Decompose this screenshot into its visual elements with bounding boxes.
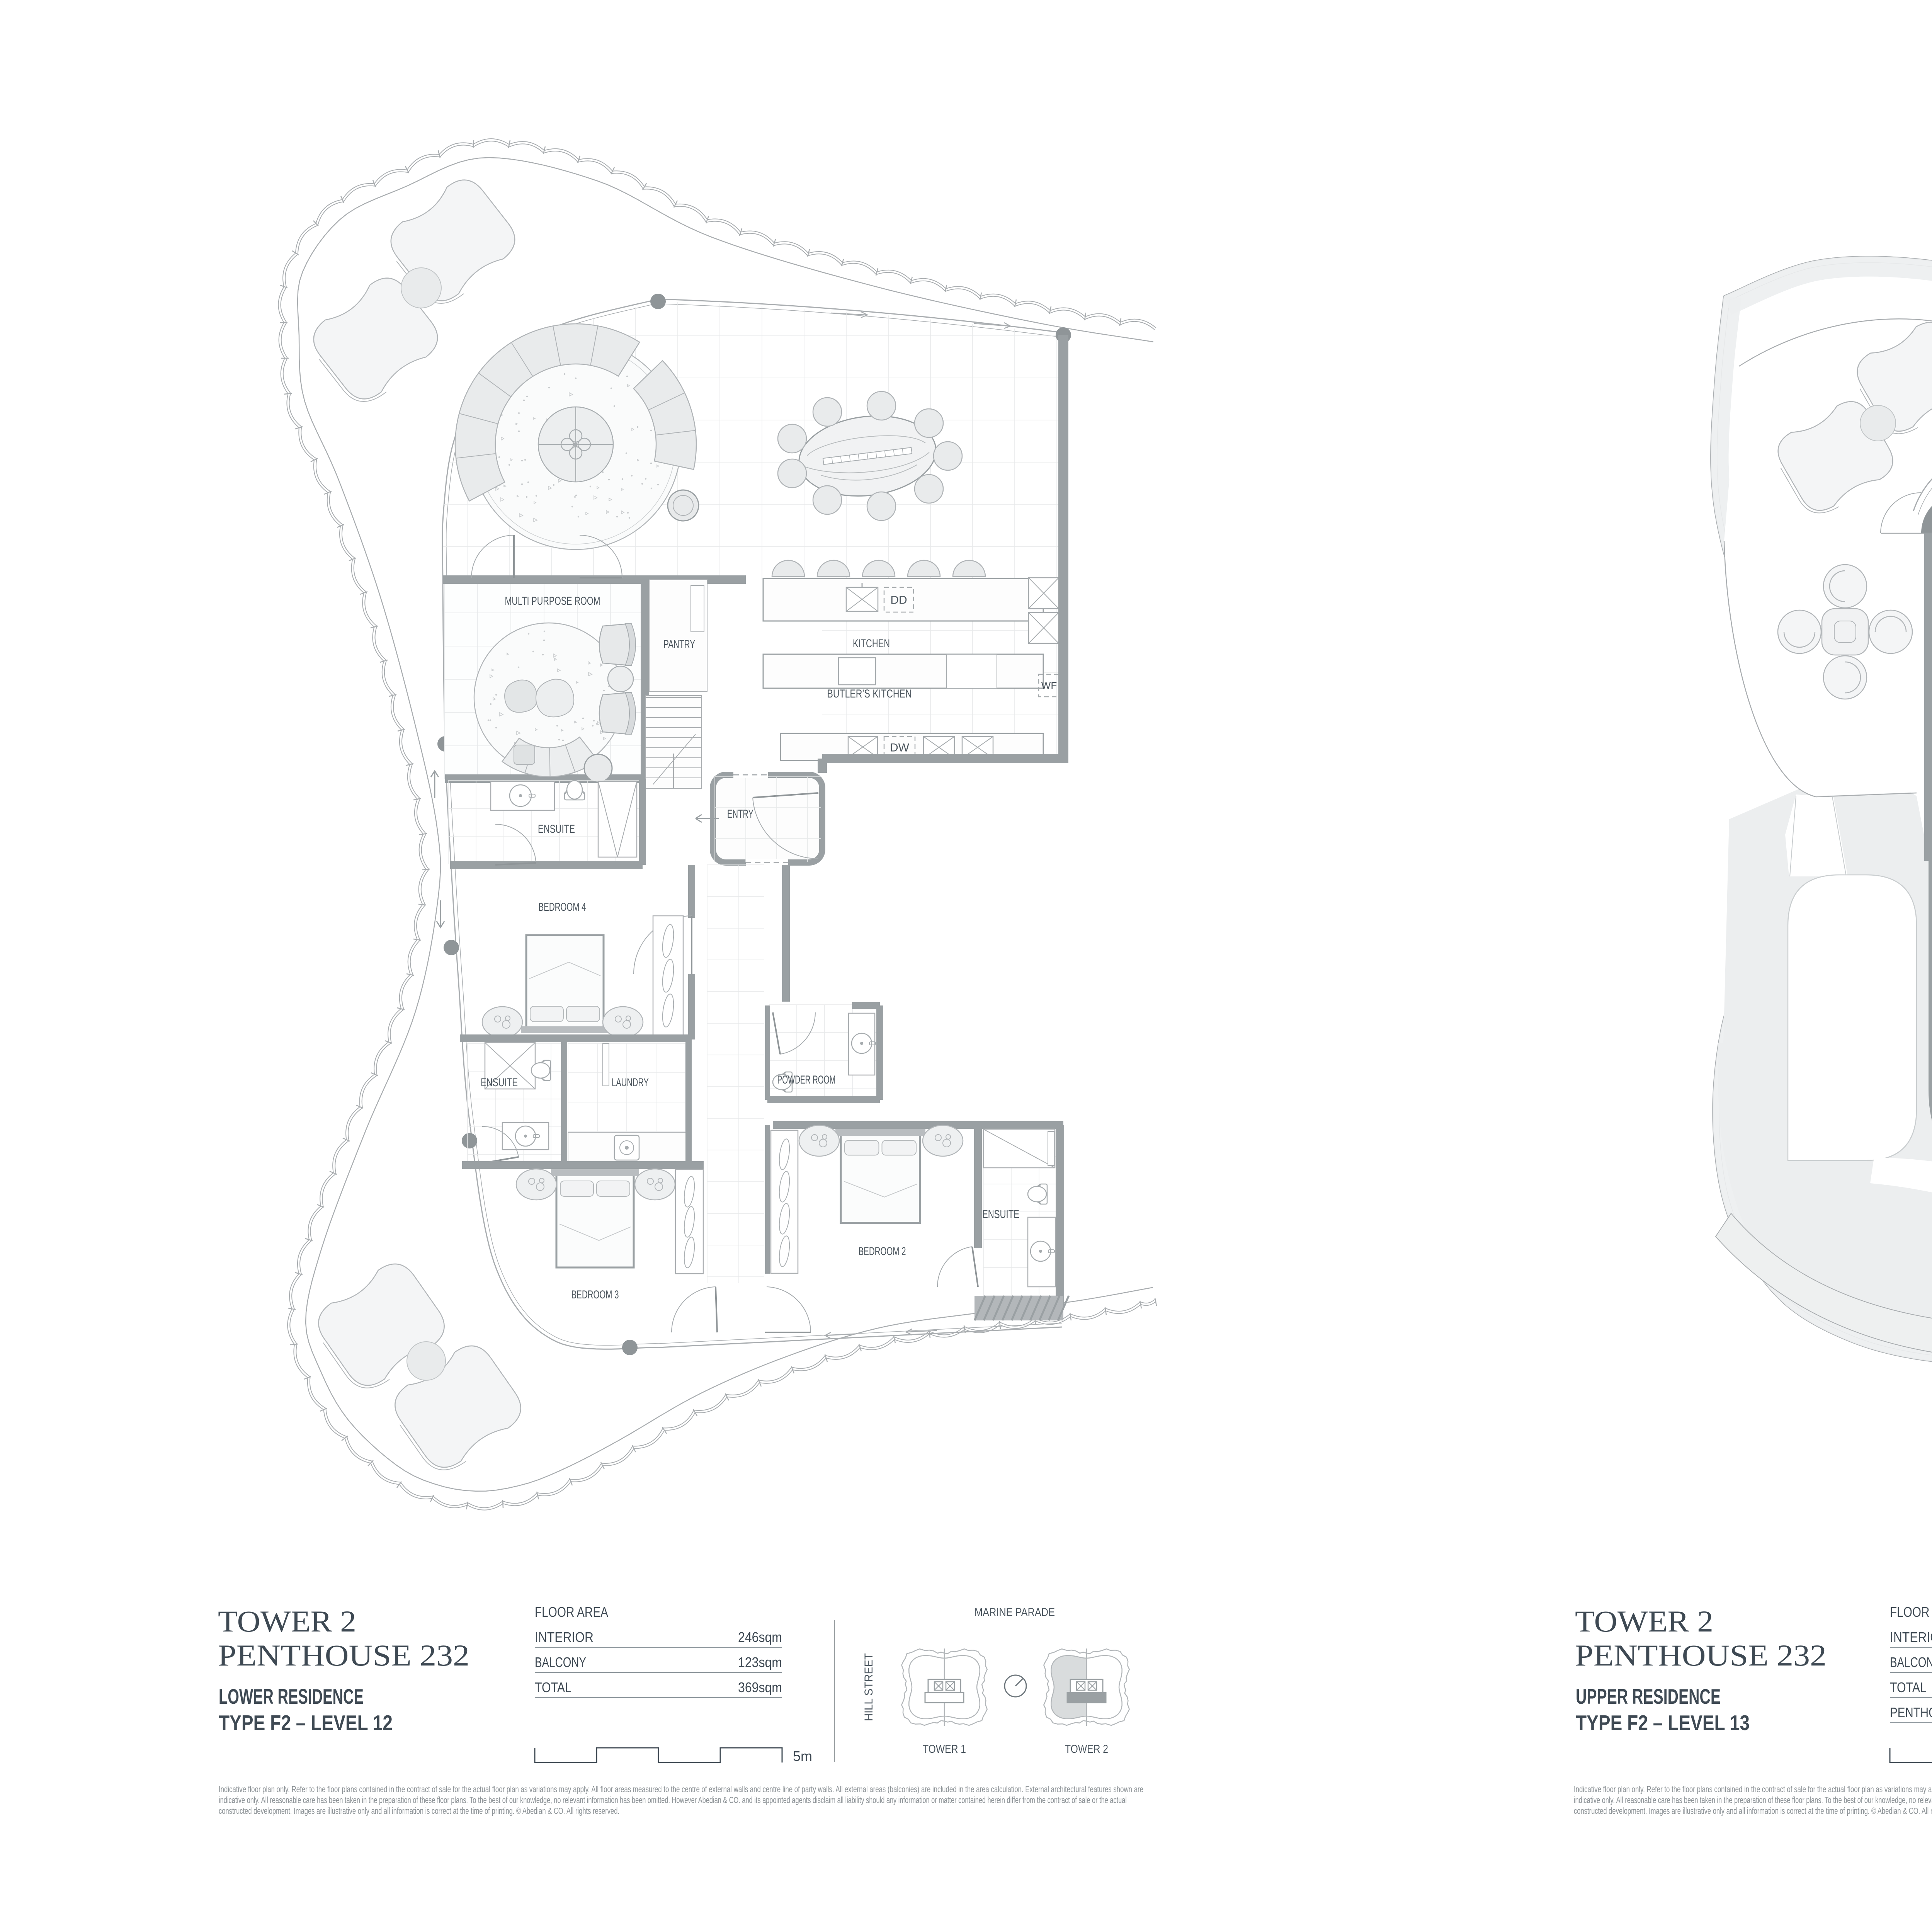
svg-text:KITCHEN: KITCHEN — [853, 637, 890, 650]
svg-text:INTERIOR: INTERIOR — [1890, 1629, 1932, 1645]
svg-text:indicative only. All reasonabl: indicative only. All reasonable care has… — [219, 1795, 1127, 1805]
svg-text:TOWER 2: TOWER 2 — [1065, 1743, 1108, 1756]
svg-text:BEDROOM 2: BEDROOM 2 — [859, 1245, 906, 1258]
svg-text:PENTHOUSE 232: PENTHOUSE 232 — [1575, 1638, 1827, 1672]
svg-text:5m: 5m — [793, 1748, 812, 1764]
svg-text:PENTHOUSE 232: PENTHOUSE 232 — [218, 1638, 469, 1672]
svg-text:ENSUITE: ENSUITE — [982, 1208, 1019, 1221]
svg-text:POWDER ROOM: POWDER ROOM — [777, 1073, 836, 1086]
svg-text:BEDROOM 3: BEDROOM 3 — [571, 1288, 619, 1301]
svg-text:TYPE F2 – LEVEL 13: TYPE F2 – LEVEL 13 — [1576, 1711, 1750, 1735]
svg-text:ENSUITE: ENSUITE — [538, 823, 575, 835]
svg-text:Indicative floor plan only. Re: Indicative floor plan only. Refer to the… — [219, 1784, 1143, 1794]
svg-text:PANTRY: PANTRY — [663, 638, 695, 651]
svg-text:HILL STREET: HILL STREET — [862, 1653, 875, 1721]
svg-text:FLOOR AREA: FLOOR AREA — [1890, 1604, 1932, 1620]
svg-text:TOWER 1: TOWER 1 — [923, 1743, 966, 1756]
svg-text:PENTHOUSE GRAND TOTAL: PENTHOUSE GRAND TOTAL — [1890, 1705, 1932, 1720]
svg-text:BALCONY: BALCONY — [1890, 1654, 1932, 1670]
svg-text:BALCONY: BALCONY — [535, 1654, 586, 1670]
svg-text:123sqm: 123sqm — [738, 1654, 782, 1670]
svg-text:TOTAL: TOTAL — [535, 1679, 571, 1695]
svg-text:TOWER 2: TOWER 2 — [1575, 1604, 1713, 1638]
svg-text:LOWER RESIDENCE: LOWER RESIDENCE — [219, 1684, 364, 1708]
svg-text:MULTI PURPOSE ROOM: MULTI PURPOSE ROOM — [505, 595, 600, 607]
svg-text:TOTAL: TOTAL — [1890, 1679, 1927, 1695]
svg-text:indicative only. All reasonabl: indicative only. All reasonable care has… — [1574, 1795, 1932, 1805]
svg-text:BEDROOM 4: BEDROOM 4 — [539, 901, 586, 914]
svg-text:FLOOR AREA: FLOOR AREA — [535, 1604, 608, 1620]
svg-text:Indicative floor plan only. Re: Indicative floor plan only. Refer to the… — [1574, 1784, 1932, 1794]
svg-text:MARINE PARADE: MARINE PARADE — [975, 1606, 1055, 1619]
svg-text:INTERIOR: INTERIOR — [535, 1629, 594, 1645]
svg-text:UPPER RESIDENCE: UPPER RESIDENCE — [1576, 1684, 1721, 1708]
svg-text:246sqm: 246sqm — [738, 1629, 782, 1645]
svg-text:ENTRY: ENTRY — [727, 808, 753, 820]
svg-text:BUTLER’S KITCHEN: BUTLER’S KITCHEN — [827, 687, 912, 700]
svg-text:constructed development. Image: constructed development. Images are illu… — [219, 1806, 619, 1816]
svg-text:DD: DD — [890, 594, 907, 607]
svg-text:TOWER 2: TOWER 2 — [218, 1604, 356, 1638]
svg-text:TYPE F2 – LEVEL 12: TYPE F2 – LEVEL 12 — [219, 1711, 393, 1735]
svg-text:DW: DW — [890, 742, 910, 754]
svg-text:LAUNDRY: LAUNDRY — [612, 1076, 649, 1089]
svg-text:WF: WF — [1041, 680, 1057, 691]
svg-text:369sqm: 369sqm — [738, 1679, 782, 1695]
svg-text:ENSUITE: ENSUITE — [481, 1076, 518, 1089]
svg-text:constructed development. Image: constructed development. Images are illu… — [1574, 1806, 1932, 1816]
